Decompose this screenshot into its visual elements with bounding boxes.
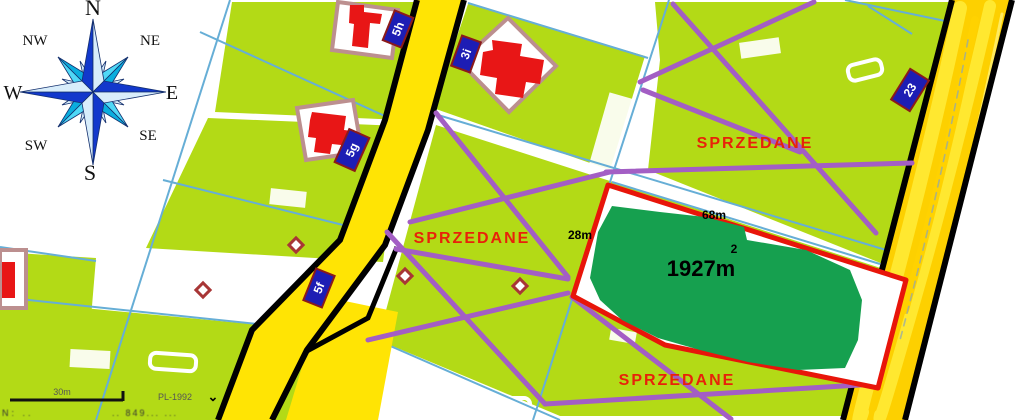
- compass-label-w: W: [4, 82, 23, 104]
- coordinate-readout-left: N: ..: [2, 408, 34, 418]
- compass-label-ne: NE: [140, 33, 160, 49]
- plot-top-edge-length: 68m: [702, 208, 726, 222]
- plot-left-edge-length: 28m: [568, 228, 592, 242]
- compass-point-e: [93, 81, 166, 92]
- compass-label-nw: NW: [23, 33, 49, 49]
- building-footprint: [2, 262, 15, 298]
- sold-label: SPRZEDANE: [697, 135, 814, 152]
- cadastral-map: 5h 3i 5g 5f 23 SPRZEDANE SPRZEDANE SPRZE…: [0, 0, 1024, 420]
- compass-point-s: [93, 92, 104, 165]
- compass-point-s: [82, 92, 93, 165]
- sold-label: SPRZEDANE: [619, 372, 736, 389]
- compass-label-n: N: [85, 0, 101, 20]
- compass-point-e: [93, 92, 166, 103]
- crs-label: PL-1992: [158, 392, 192, 402]
- diamond-marker: [196, 283, 210, 297]
- compass-label-s: S: [84, 160, 96, 185]
- chevron-down-icon[interactable]: ⌄: [208, 389, 219, 404]
- coordinate-readout-right: .. 849... ...: [112, 408, 178, 418]
- scale-label: 30m: [53, 387, 71, 397]
- compass-point-n: [82, 19, 93, 92]
- compass-point-w: [20, 92, 93, 103]
- compass-label-e: E: [166, 82, 178, 104]
- sold-label: SPRZEDANE: [414, 230, 531, 247]
- plot-area-value: 1927m: [667, 256, 736, 281]
- compass-point-n: [93, 19, 104, 92]
- compass-label-sw: SW: [25, 138, 48, 154]
- plot-area-exponent: 2: [731, 242, 738, 256]
- compass-label-se: SE: [139, 128, 157, 144]
- compass-point-w: [20, 81, 93, 92]
